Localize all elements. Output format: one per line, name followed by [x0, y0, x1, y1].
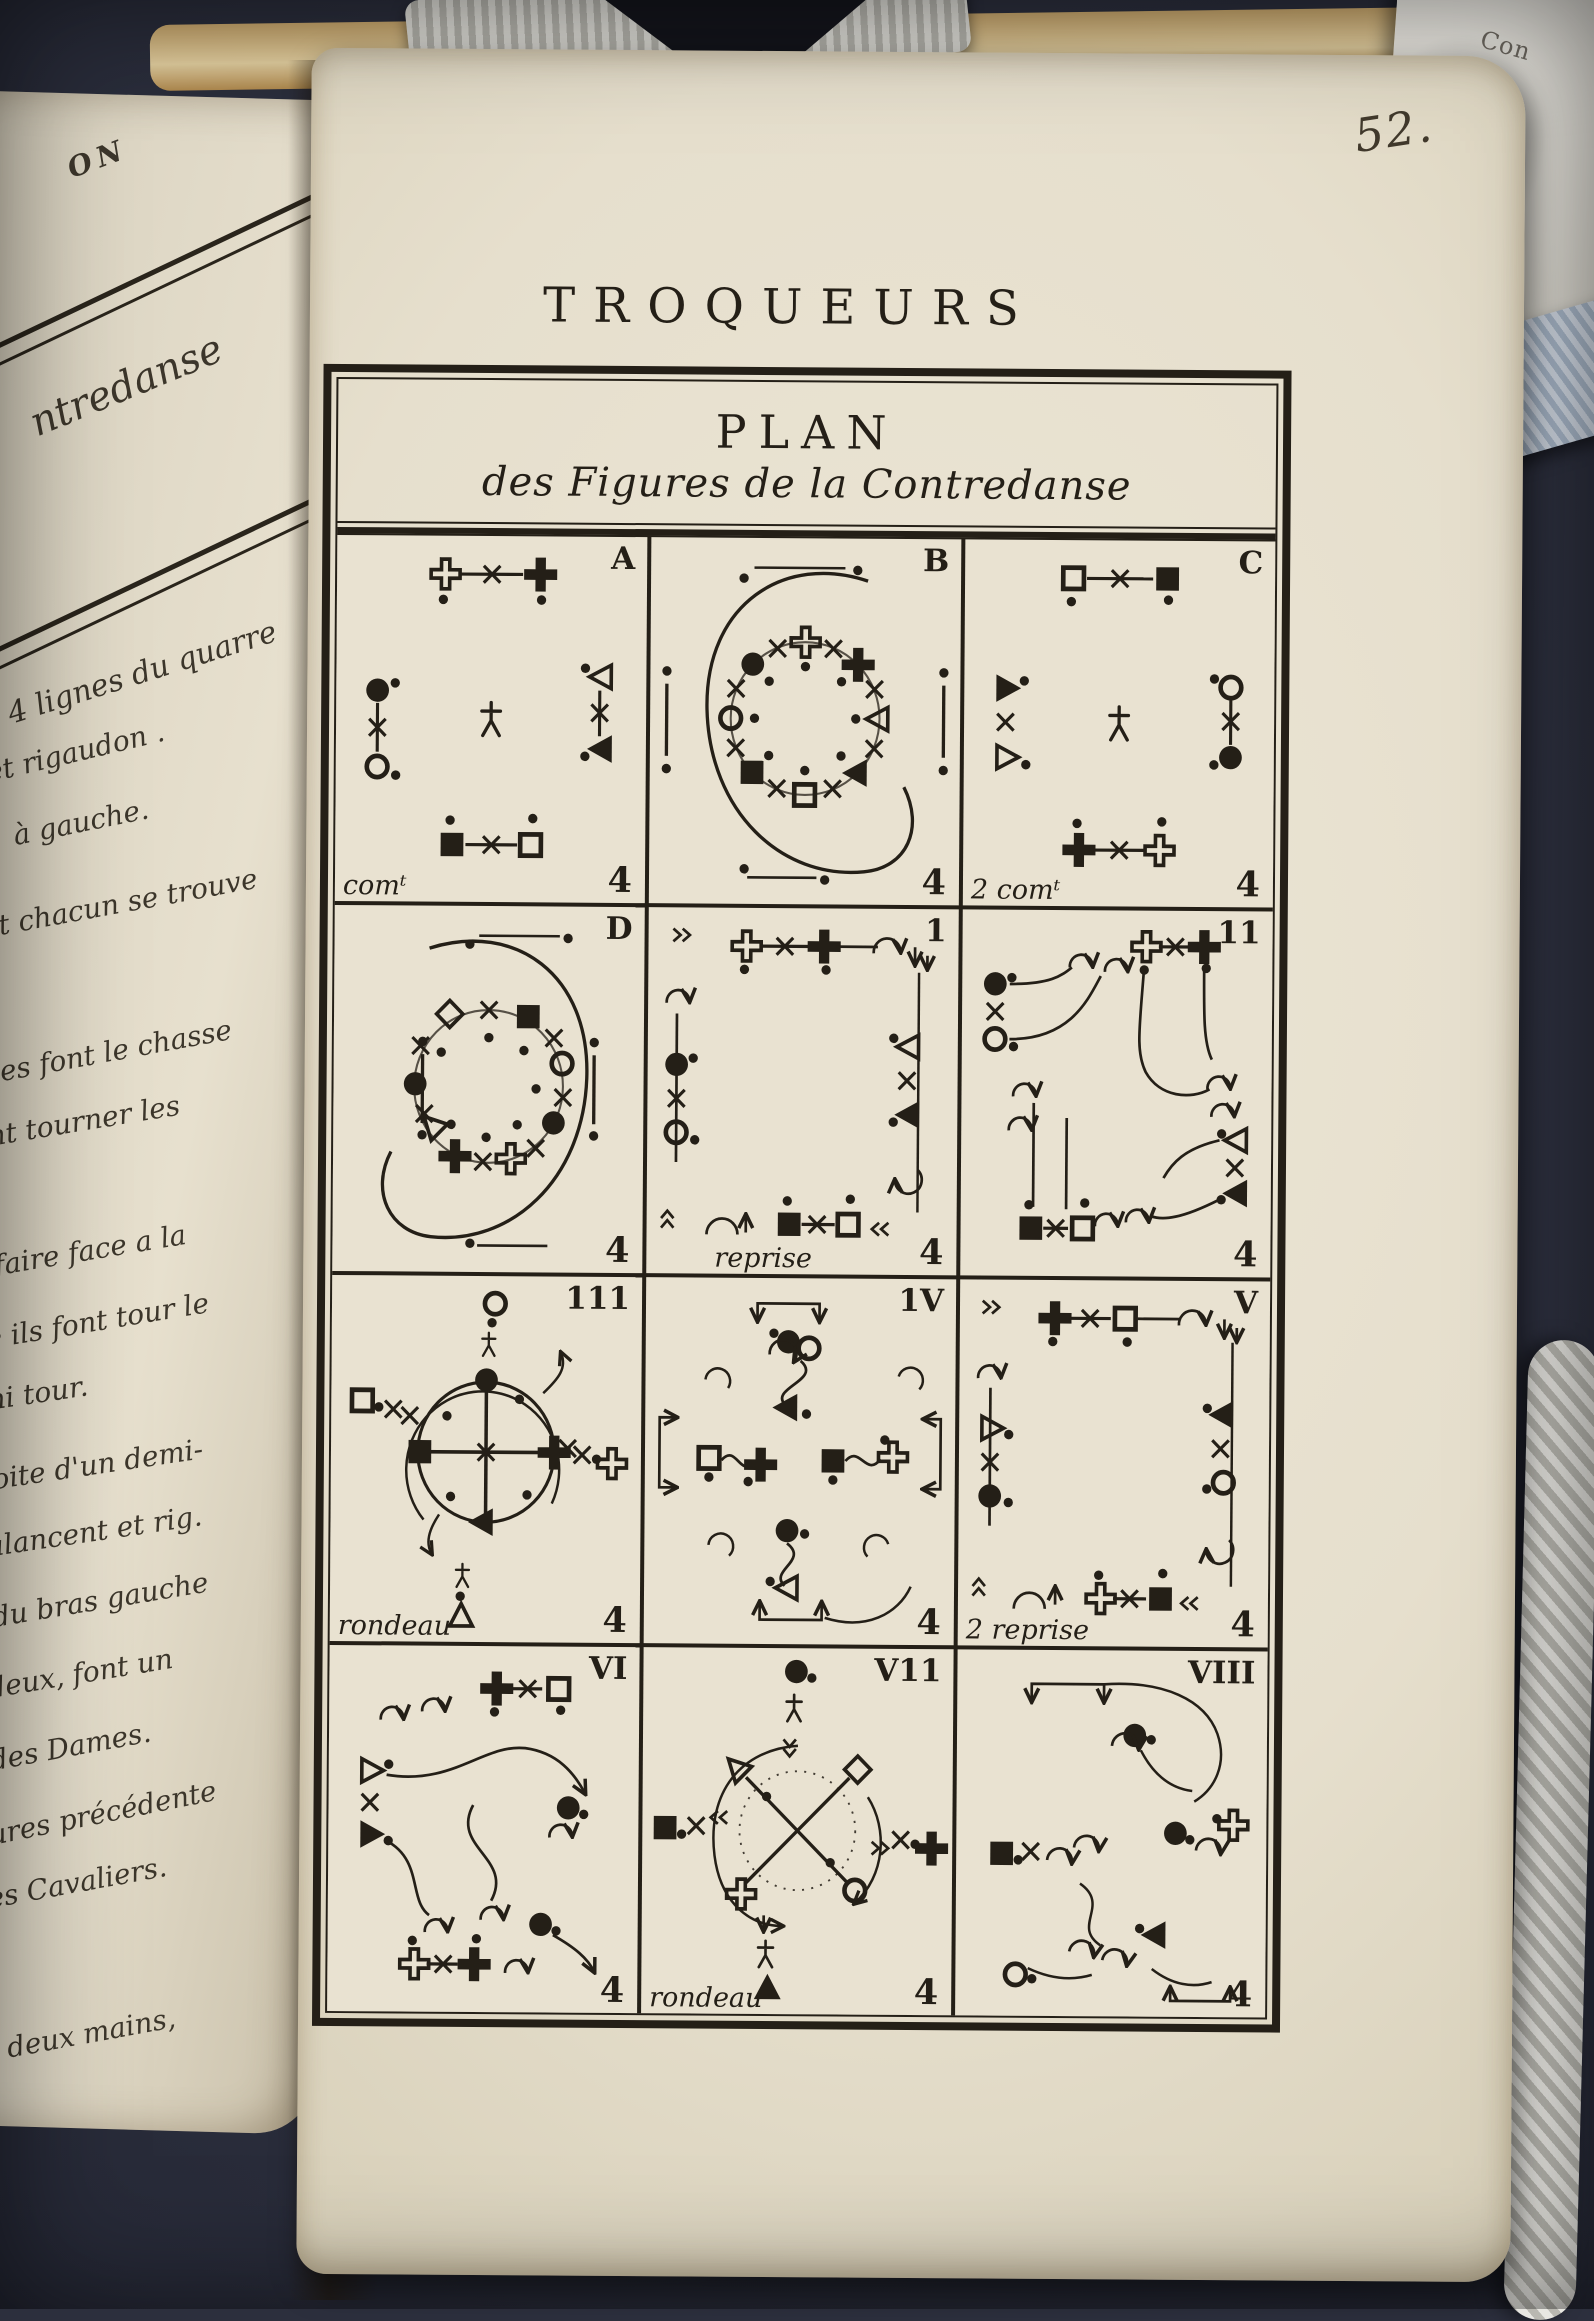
cell-count: 4: [1230, 1604, 1255, 1645]
left-page-line: le du bras gauche: [0, 1566, 211, 1640]
plan-title: PLAN: [715, 405, 898, 460]
left-page-line: droite d'un demi-: [0, 1432, 205, 1500]
cell-corner-label: 1: [925, 913, 947, 949]
cell-A-diagram: [335, 535, 648, 903]
left-page-line: à gauche.: [10, 793, 151, 853]
cell-corner-label: B: [923, 543, 949, 579]
left-page-line: balancent et rig.: [0, 1499, 204, 1566]
plan-cell-V: V 2 reprise 4: [958, 1279, 1271, 1647]
cell-caption: reprise: [714, 1243, 812, 1275]
left-page-line: it les Cavaliers.: [0, 1850, 169, 1922]
cell-count: 4: [919, 1232, 944, 1273]
left-page-line: te des Dames.: [0, 1716, 154, 1785]
plan-cell-IV: 1V 4: [644, 1277, 957, 1645]
running-title: TROQUEURS: [310, 276, 1270, 339]
handwritten-page-number: 52.: [1350, 98, 1436, 163]
left-page-line: ON: [63, 132, 133, 185]
left-page-line: is deux, font un: [0, 1642, 175, 1710]
plan-cell-D: D 4: [332, 905, 645, 1273]
plan-frame: PLAN des Figures de la Contredanse: [312, 364, 1292, 2033]
cell-count: 4: [914, 1972, 939, 2013]
plan-cell-VI: VI 4: [327, 1645, 640, 2013]
cell-corner-label: V11: [874, 1653, 941, 1689]
cell-caption: rondeau: [649, 1982, 763, 2014]
left-page-line: ont tourner les: [0, 1089, 182, 1156]
cell-corner-label: 1V: [898, 1283, 944, 1319]
cell-D-diagram: [332, 905, 645, 1273]
cell-caption: comᵗ: [343, 870, 407, 901]
left-page-line: ite ils font tour le: [0, 1286, 211, 1359]
cell-corner-label: V: [1234, 1285, 1258, 1321]
left-page-line: es deux mains,: [0, 2001, 178, 2071]
plan-cell-III: 111 rondeau 4: [330, 1275, 643, 1643]
cell-B-diagram: [649, 537, 962, 905]
cell-VI-diagram: [327, 1645, 640, 2013]
cell-caption: 2 comᵗ: [971, 874, 1061, 906]
cell-II-diagram: [960, 909, 1273, 1277]
cell-corner-label: D: [606, 911, 633, 947]
plan-subtitle: des Figures de la Contredanse: [482, 459, 1132, 510]
left-page-line: ntredanse: [23, 326, 229, 446]
plan-frame-inner: PLAN des Figures de la Contredanse: [325, 377, 1278, 2020]
left-page-line: figures précédente: [0, 1774, 219, 1859]
cell-corner-label: 11: [1217, 915, 1260, 951]
cell-C-diagram: [963, 539, 1276, 907]
plan-grid: A comᵗ 4: [327, 533, 1275, 2018]
cell-III-diagram: [330, 1275, 643, 1643]
cell-corner-label: VIII: [1188, 1655, 1256, 1691]
plan-cell-I: 1 reprise 4: [646, 907, 959, 1275]
cell-count: 4: [607, 860, 632, 901]
cell-count: 4: [605, 1230, 630, 1271]
plan-cell-A: A comᵗ 4: [335, 535, 648, 903]
cell-count: 4: [1235, 864, 1260, 905]
cell-count: 4: [1228, 1974, 1253, 2015]
plan-cell-II: 11 4: [960, 909, 1273, 1277]
plan-header: PLAN des Figures de la Contredanse: [337, 379, 1276, 540]
left-page-line: mes font le chasse: [0, 1013, 234, 1093]
cell-count: 4: [1233, 1234, 1258, 1275]
cell-count: 4: [916, 1602, 941, 1643]
cell-VII-diagram: [641, 1647, 954, 2015]
main-page: 52. TROQUEURS PLAN des Figures de la Con…: [296, 48, 1526, 2282]
plan-cell-C: C 2 comᵗ 4: [963, 539, 1276, 907]
cell-VIII-diagram: [955, 1649, 1268, 2017]
cell-corner-label: 111: [565, 1281, 630, 1317]
plan-cell-VII: V11 rondeau 4: [641, 1647, 954, 2015]
cell-count: 4: [602, 1600, 627, 1641]
cell-caption: 2 reprise: [966, 1614, 1090, 1646]
left-page-line: emi tour.: [0, 1369, 90, 1420]
cell-caption: rondeau: [338, 1610, 452, 1642]
cell-corner-label: A: [611, 541, 635, 577]
cell-corner-label: C: [1238, 545, 1263, 581]
cell-count: 4: [921, 862, 946, 903]
plan-cell-B: B 4: [649, 537, 962, 905]
cell-count: 4: [600, 1970, 625, 2011]
left-page-line: et chacun se trouve: [0, 862, 260, 945]
cell-I-diagram: [646, 907, 959, 1275]
left-page-line: n faire face a la: [0, 1218, 189, 1287]
cell-IV-diagram: [644, 1277, 957, 1645]
cell-corner-label: VI: [589, 1651, 628, 1687]
cell-V-diagram: [958, 1279, 1271, 1647]
plan-cell-VIII: VIII 4: [955, 1649, 1268, 2017]
